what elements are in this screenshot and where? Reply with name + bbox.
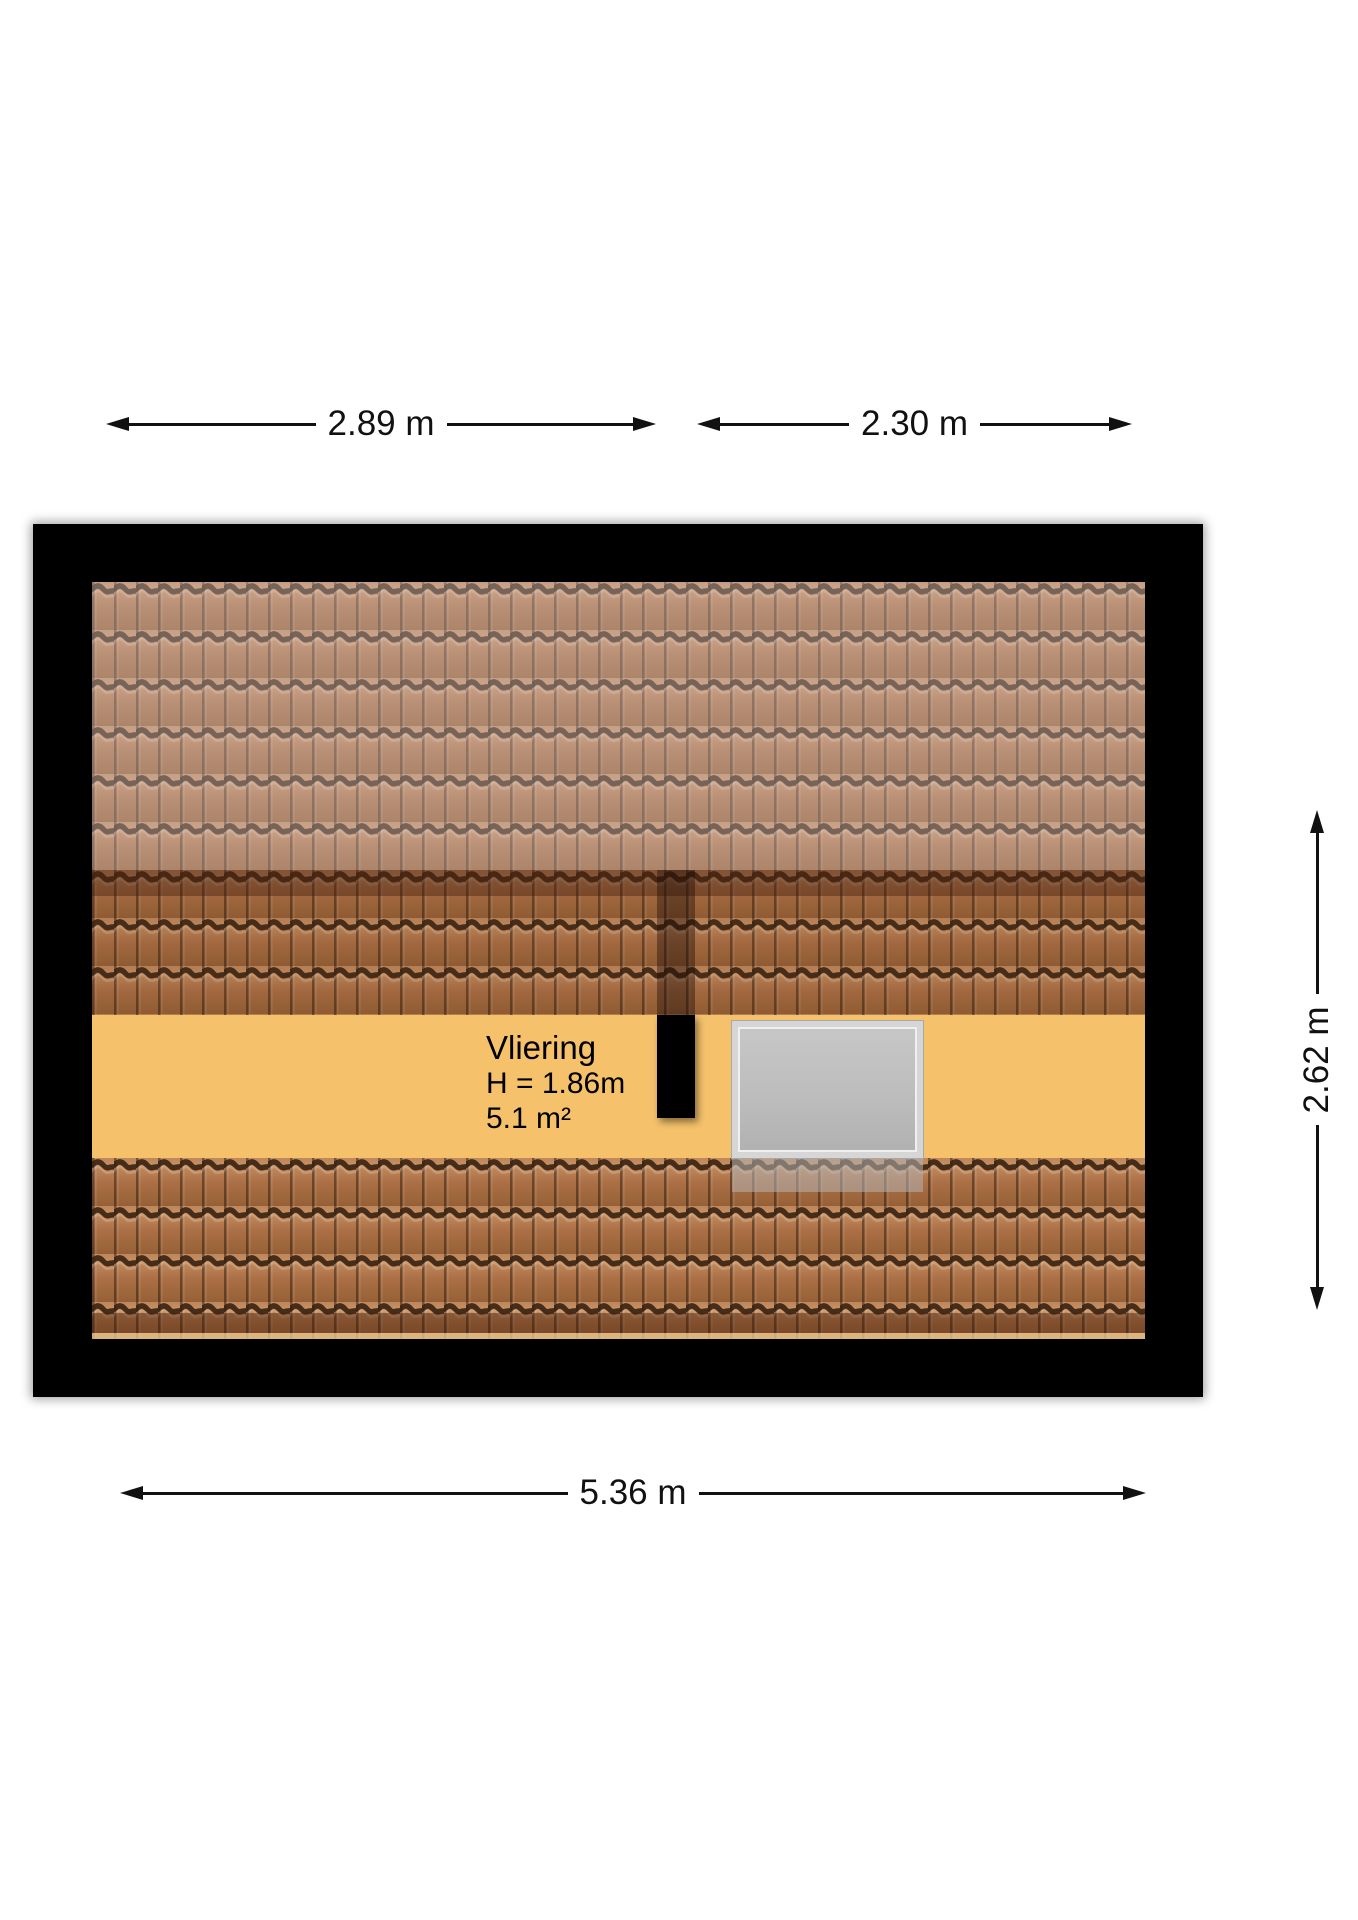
arrowhead-right-icon <box>1123 1486 1146 1500</box>
room-area: 5.1 m² <box>486 1101 625 1136</box>
arrowhead-left-icon <box>120 1486 143 1500</box>
dimension-line-segment <box>980 423 1109 426</box>
dimension-line-segment <box>720 423 849 426</box>
dimension-bottom: 5.36 m <box>120 1473 1146 1513</box>
eave-shadow <box>92 1313 1145 1333</box>
dimension-label: 2.62 m <box>1297 995 1337 1126</box>
chimney <box>657 1015 695 1118</box>
attic-floorplan-frame: Vliering H = 1.86m 5.1 m² <box>33 524 1203 1397</box>
dimension-line-segment <box>129 423 316 426</box>
dimension-line-segment <box>699 1492 1124 1495</box>
chimney-streak <box>657 870 695 1015</box>
dimension-line-segment <box>143 1492 568 1495</box>
arrowhead-right-icon <box>633 417 656 431</box>
arrowhead-down-icon <box>1310 1287 1324 1310</box>
arrowhead-left-icon <box>106 417 129 431</box>
arrowhead-left-icon <box>697 417 720 431</box>
dimension-line-segment <box>1316 833 1319 995</box>
room-label: Vliering H = 1.86m 5.1 m² <box>486 1030 625 1136</box>
skylight-window <box>732 1021 923 1158</box>
dimension-label: 2.30 m <box>849 404 980 444</box>
roof-front-slope-upper-shade <box>92 896 1145 1015</box>
arrowhead-right-icon <box>1109 417 1132 431</box>
roof-ridge-shade <box>92 870 1145 896</box>
dimension-top-right: 2.30 m <box>697 404 1132 444</box>
roof-back-slope-haze <box>92 582 1145 870</box>
dimension-line-segment <box>1316 1126 1319 1288</box>
dimension-label: 5.36 m <box>568 1473 699 1513</box>
room-height: H = 1.86m <box>486 1066 625 1101</box>
dimension-right: 2.62 m <box>1297 810 1337 1310</box>
room-name: Vliering <box>486 1030 625 1066</box>
skylight-overlay <box>732 1158 923 1192</box>
arrowhead-up-icon <box>1310 810 1324 833</box>
floorplan-canvas: 2.89 m 2.30 m 2.62 m 5.36 m <box>0 0 1358 1920</box>
roof-tiles-graphic <box>92 582 1145 1339</box>
dimension-top-left: 2.89 m <box>106 404 656 444</box>
dimension-line-segment <box>447 423 634 426</box>
attic-floorplan-interior: Vliering H = 1.86m 5.1 m² <box>92 582 1145 1339</box>
eave-edge <box>92 1333 1145 1339</box>
dimension-label: 2.89 m <box>316 404 447 444</box>
roof-front-slope-lower <box>92 1158 1145 1339</box>
